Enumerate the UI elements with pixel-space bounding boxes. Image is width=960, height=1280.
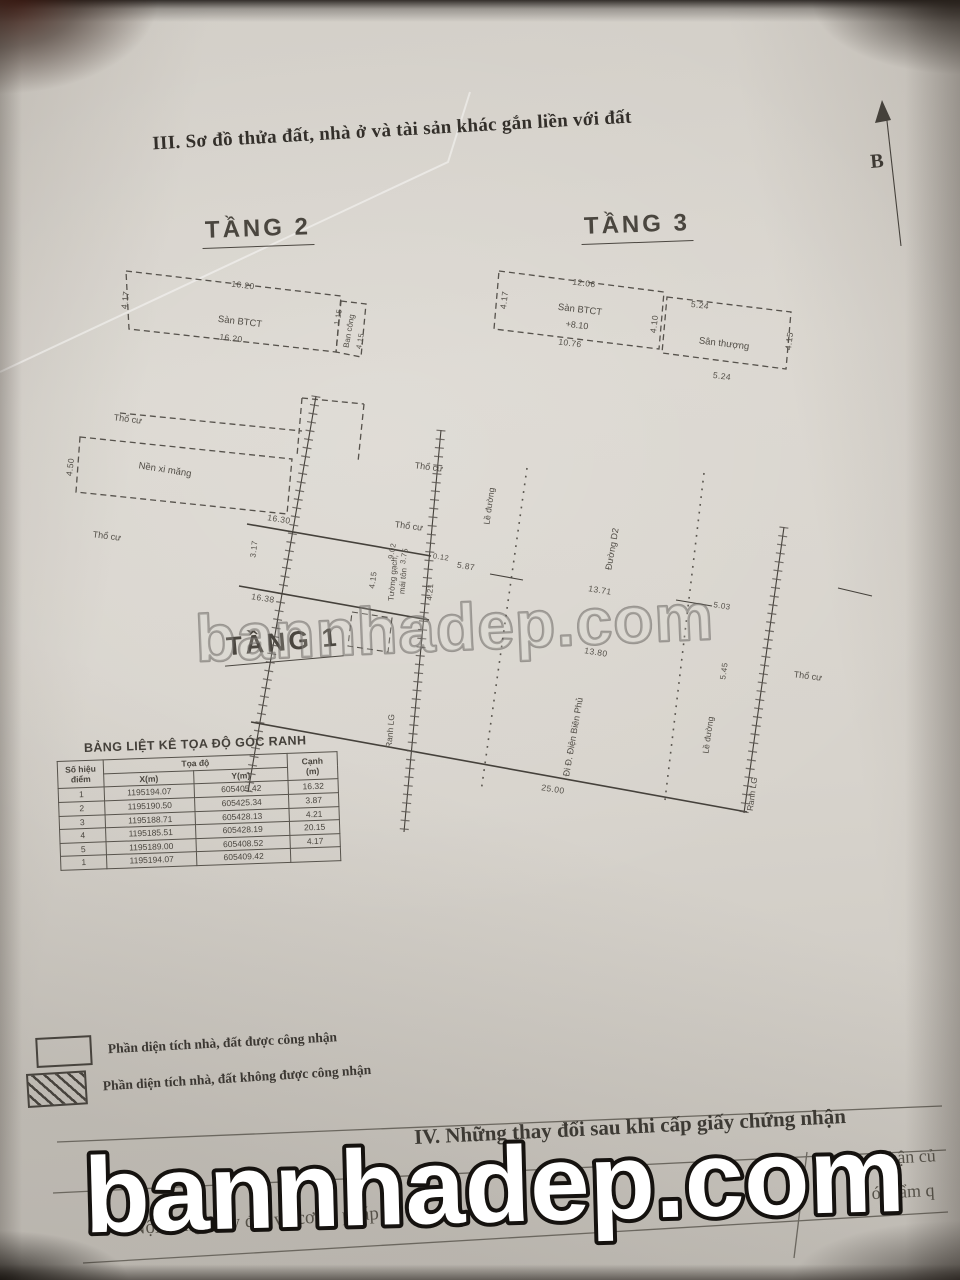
- legend-swatch-recognized: [35, 1035, 92, 1068]
- coordinate-table: BẢNG LIỆT KÊ TỌA ĐỘ GÓC RANH Số hiệu điể…: [56, 732, 341, 871]
- north-arrow-head: [875, 100, 891, 123]
- cell-edge: [290, 847, 340, 862]
- dim-tick-503: [676, 600, 712, 606]
- col-header-edge: Cạnh (m): [287, 752, 338, 781]
- cell-x: 1195194.07: [106, 852, 196, 869]
- floor3-terrace-dim-bottom: 5.24: [712, 370, 731, 382]
- floor3-title: TẦNG 3: [580, 209, 693, 245]
- section4-rule-mid: [53, 1150, 946, 1193]
- dim-tick-right: [838, 588, 872, 596]
- legend-label-recognized: Phần diện tích nhà, đất được công nhận: [107, 1029, 337, 1057]
- col-header-point-l2: điểm: [60, 774, 101, 786]
- yard-notch-line: [120, 413, 302, 431]
- section4-right-fragment-1: hận củ: [888, 1145, 937, 1168]
- north-label: B: [869, 150, 884, 174]
- floor3-terrace-dim-top: 5.24: [690, 299, 709, 311]
- legend-swatch-not-recognized: [26, 1070, 88, 1108]
- cell-point: 1: [61, 855, 107, 870]
- yard-notch-left: [297, 398, 302, 456]
- document-photo: III. Sơ đồ thửa đất, nhà ở và tài sản kh…: [0, 0, 960, 1280]
- dim-421: 4.21: [425, 583, 435, 601]
- floor2-title: TẦNG 2: [201, 213, 314, 249]
- col-header-edge-l2: (m): [290, 765, 335, 777]
- col-header-point-l1: Số hiệu: [60, 763, 101, 775]
- road-edge-right: [665, 473, 704, 800]
- yard-notch-top: [302, 398, 364, 404]
- yard-notch-right: [358, 404, 364, 462]
- wall-line: [404, 430, 441, 832]
- road-corridor-boundary: [744, 527, 784, 813]
- cell-y: 605409.42: [196, 849, 290, 866]
- section4-divider: [794, 1152, 807, 1258]
- floor3-terrace-outline: [662, 297, 791, 369]
- section4-right-fragment-2: ó thẩm q: [871, 1180, 935, 1204]
- col-header-point: Số hiệu điểm: [57, 760, 104, 789]
- coordinate-table-grid: Số hiệu điểm Tọa độ Cạnh (m) X(m) Y(m) 1…: [57, 751, 342, 871]
- porch-outline: [348, 612, 392, 652]
- north-arrow-line: [886, 112, 901, 246]
- dim-tick-587: [490, 574, 523, 580]
